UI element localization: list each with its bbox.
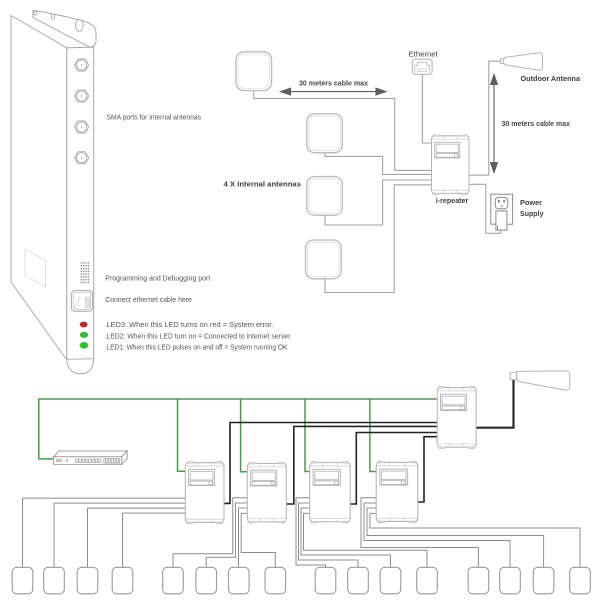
- svg-text:Power: Power: [520, 200, 542, 207]
- svg-text:Ethernet: Ethernet: [409, 51, 438, 58]
- svg-text:LED1: When this LED pulses on: LED1: When this LED pulses on and off = …: [106, 345, 287, 352]
- svg-text:LED2: When this LED turn on =: LED2: When this LED turn on = Connected …: [106, 333, 292, 340]
- svg-text:Programming and Debugging port: Programming and Debugging port: [105, 275, 210, 282]
- svg-text:i-repeater: i-repeater: [436, 196, 469, 205]
- svg-text:30 meters cable max: 30 meters cable max: [502, 121, 571, 128]
- svg-text:Supply: Supply: [520, 211, 544, 218]
- svg-text:Outdoor Antenna: Outdoor Antenna: [521, 76, 581, 83]
- svg-text:Connect ethernet cable here: Connect ethernet cable here: [105, 297, 192, 304]
- svg-text:30 meters cable max: 30 meters cable max: [299, 80, 368, 87]
- svg-text:LED3: When this LED turns on: LED3: When this LED turns on red = Syste…: [106, 322, 273, 329]
- svg-text:4 X Internal antennas: 4 X Internal antennas: [224, 182, 302, 189]
- svg-text:SMA ports for internal antenna: SMA ports for internal antennas: [107, 115, 202, 122]
